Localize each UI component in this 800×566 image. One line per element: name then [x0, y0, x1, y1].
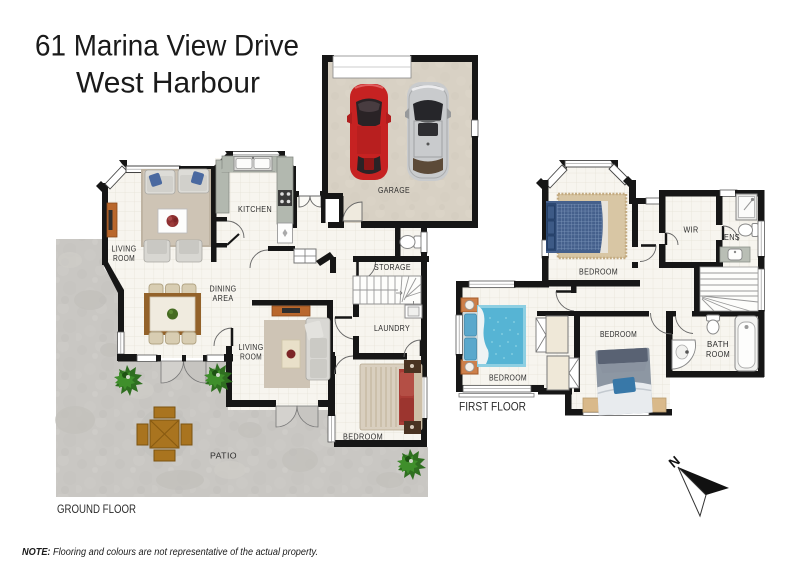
svg-text:61 Marina View Drive: 61 Marina View Drive — [35, 30, 299, 63]
svg-text:BEDROOM: BEDROOM — [489, 373, 527, 383]
svg-text:ENS: ENS — [724, 232, 740, 242]
svg-text:BEDROOM: BEDROOM — [343, 432, 383, 442]
svg-text:ROOM: ROOM — [113, 253, 135, 263]
svg-text:ROOM: ROOM — [240, 352, 262, 362]
svg-text:FIRST FLOOR: FIRST FLOOR — [459, 400, 526, 414]
svg-text:DINING: DINING — [210, 284, 237, 294]
svg-text:LIVING: LIVING — [239, 342, 264, 352]
svg-text:NOTE: Flooring and colours are: NOTE: Flooring and colours are not repre… — [22, 546, 318, 558]
svg-text:GARAGE: GARAGE — [378, 185, 410, 195]
svg-text:WIR: WIR — [684, 225, 699, 235]
svg-text:BATH: BATH — [707, 339, 729, 349]
svg-text:STORAGE: STORAGE — [374, 262, 411, 272]
svg-text:KITCHEN: KITCHEN — [238, 204, 272, 214]
svg-text:BEDROOM: BEDROOM — [600, 329, 637, 339]
svg-text:BEDROOM: BEDROOM — [579, 267, 618, 277]
svg-text:PATIO: PATIO — [210, 451, 237, 461]
svg-text:ROOM: ROOM — [706, 349, 730, 359]
svg-text:GROUND FLOOR: GROUND FLOOR — [57, 502, 136, 516]
svg-text:AREA: AREA — [213, 293, 234, 303]
svg-text:West Harbour: West Harbour — [76, 67, 260, 100]
svg-text:LIVING: LIVING — [112, 244, 137, 254]
svg-text:LAUNDRY: LAUNDRY — [374, 323, 410, 333]
